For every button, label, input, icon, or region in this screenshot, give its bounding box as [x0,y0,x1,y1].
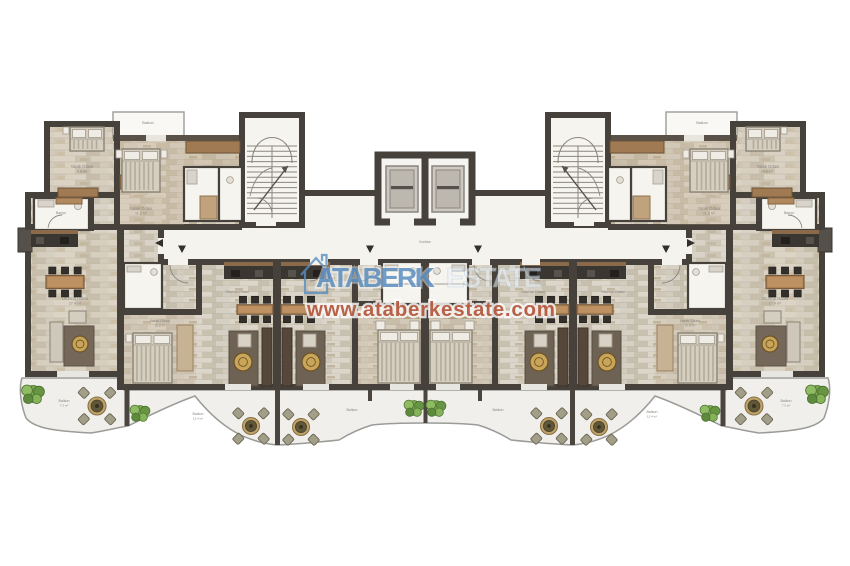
svg-text:7.3 m²: 7.3 m² [60,404,69,408]
svg-text:Yatak Odası: Yatak Odası [680,319,701,323]
svg-text:Balkon: Balkon [647,410,658,414]
svg-text:Balkon: Balkon [781,399,792,403]
svg-text:Yatak Odası: Yatak Odası [71,164,94,169]
svg-text:Oturma Odası: Oturma Odası [762,296,788,301]
svg-text:10.8 m²: 10.8 m² [155,324,166,328]
svg-text:Banyo: Banyo [56,211,66,215]
svg-text:ATABERK: ATABERK [316,262,435,293]
svg-text:Balkon: Balkon [193,412,204,416]
svg-text:Balkon: Balkon [696,121,708,125]
svg-text:Yatak Odası: Yatak Odası [757,164,780,169]
svg-text:Balkon: Balkon [347,408,358,412]
svg-text:11.2 m²: 11.2 m² [135,212,148,216]
svg-text:12.4 m²: 12.4 m² [647,415,657,419]
svg-text:9.6 m²: 9.6 m² [763,170,774,174]
svg-text:12.4 m²: 12.4 m² [193,417,203,421]
svg-text:10.8 m²: 10.8 m² [685,324,696,328]
svg-text:Balkon: Balkon [493,408,504,412]
svg-text:Oturma Odası: Oturma Odası [225,290,249,294]
svg-text:Koridor: Koridor [419,240,431,244]
svg-text:9.6 m²: 9.6 m² [77,170,88,174]
svg-text:ESTATE: ESTATE [446,262,542,293]
svg-text:Oturma Odası: Oturma Odası [62,296,88,301]
svg-text:7.3 m²: 7.3 m² [782,404,791,408]
svg-text:27.4 m²: 27.4 m² [69,302,82,306]
svg-text:Yatak Odası: Yatak Odası [698,206,721,211]
svg-text:Yatak Odası: Yatak Odası [150,319,171,323]
svg-text:Balkon: Balkon [59,399,70,403]
svg-text:Balkon: Balkon [142,121,154,125]
svg-text:11.2 m²: 11.2 m² [703,212,716,216]
svg-text:Oturma Odası: Oturma Odası [601,290,625,294]
svg-text:www.ataberkestate.com: www.ataberkestate.com [306,298,555,321]
svg-text:27.4 m²: 27.4 m² [769,302,782,306]
svg-text:Yatak Odası: Yatak Odası [130,206,153,211]
svg-text:Banyo: Banyo [784,211,794,215]
